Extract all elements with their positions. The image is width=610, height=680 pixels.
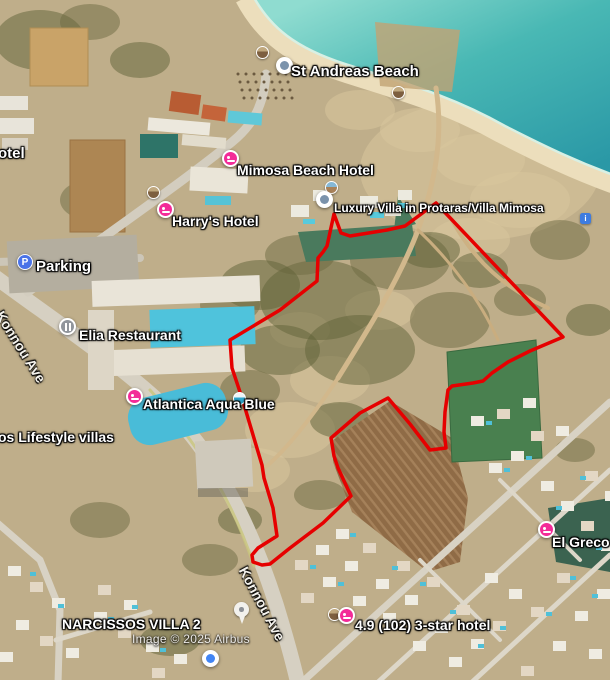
label-three-star-hotel-rating[interactable]: 4.9 (102) 3-star hotel (355, 617, 490, 633)
photo-thumbnail-icon[interactable] (147, 186, 160, 199)
label-st-andreas-beach[interactable]: St Andreas Beach (291, 63, 419, 80)
label-mimosa-beach-hotel[interactable]: Mimosa Beach Hotel (237, 162, 374, 178)
label-elia-restaurant[interactable]: Elia Restaurant (79, 327, 181, 343)
satellite-map-view[interactable]: otelSt Andreas BeachMimosa Beach HotelHa… (0, 0, 610, 680)
label-narcissos-villa-2[interactable]: NARCISSOS VILLA 2 (62, 616, 201, 632)
info-icon[interactable]: i (580, 213, 591, 224)
photo-sphere-icon[interactable] (202, 650, 219, 667)
photo-thumbnail-icon[interactable] (256, 46, 269, 59)
map-pin-icon[interactable] (234, 602, 249, 624)
imagery-attribution: Image © 2025 Airbus (132, 632, 250, 646)
field (30, 28, 88, 86)
hotel-pin-icon[interactable] (338, 607, 355, 624)
field (375, 22, 460, 92)
photo-sphere-icon[interactable] (316, 191, 333, 208)
label-lifestyle-villas-partial[interactable]: os Lifestyle villas (0, 429, 114, 445)
label-el-greco[interactable]: El Greco (552, 534, 610, 550)
photo-thumbnail-icon[interactable] (392, 86, 405, 99)
label-luxury-villa-protaras[interactable]: Luxury Villa in Protaras/Villa Mimosa (334, 201, 544, 215)
label-parking[interactable]: Parking (36, 258, 91, 275)
parking-pin-icon[interactable]: P (17, 254, 33, 270)
label-hotel-name-partial[interactable]: otel (0, 145, 25, 162)
label-harrys-hotel[interactable]: Harry's Hotel (172, 213, 259, 229)
label-atlantica-aqua-blue[interactable]: Atlantica Aqua Blue (143, 396, 275, 412)
field (70, 140, 125, 232)
hotel-pin-icon[interactable] (126, 388, 143, 405)
restaurant-pin-icon[interactable] (59, 318, 76, 335)
